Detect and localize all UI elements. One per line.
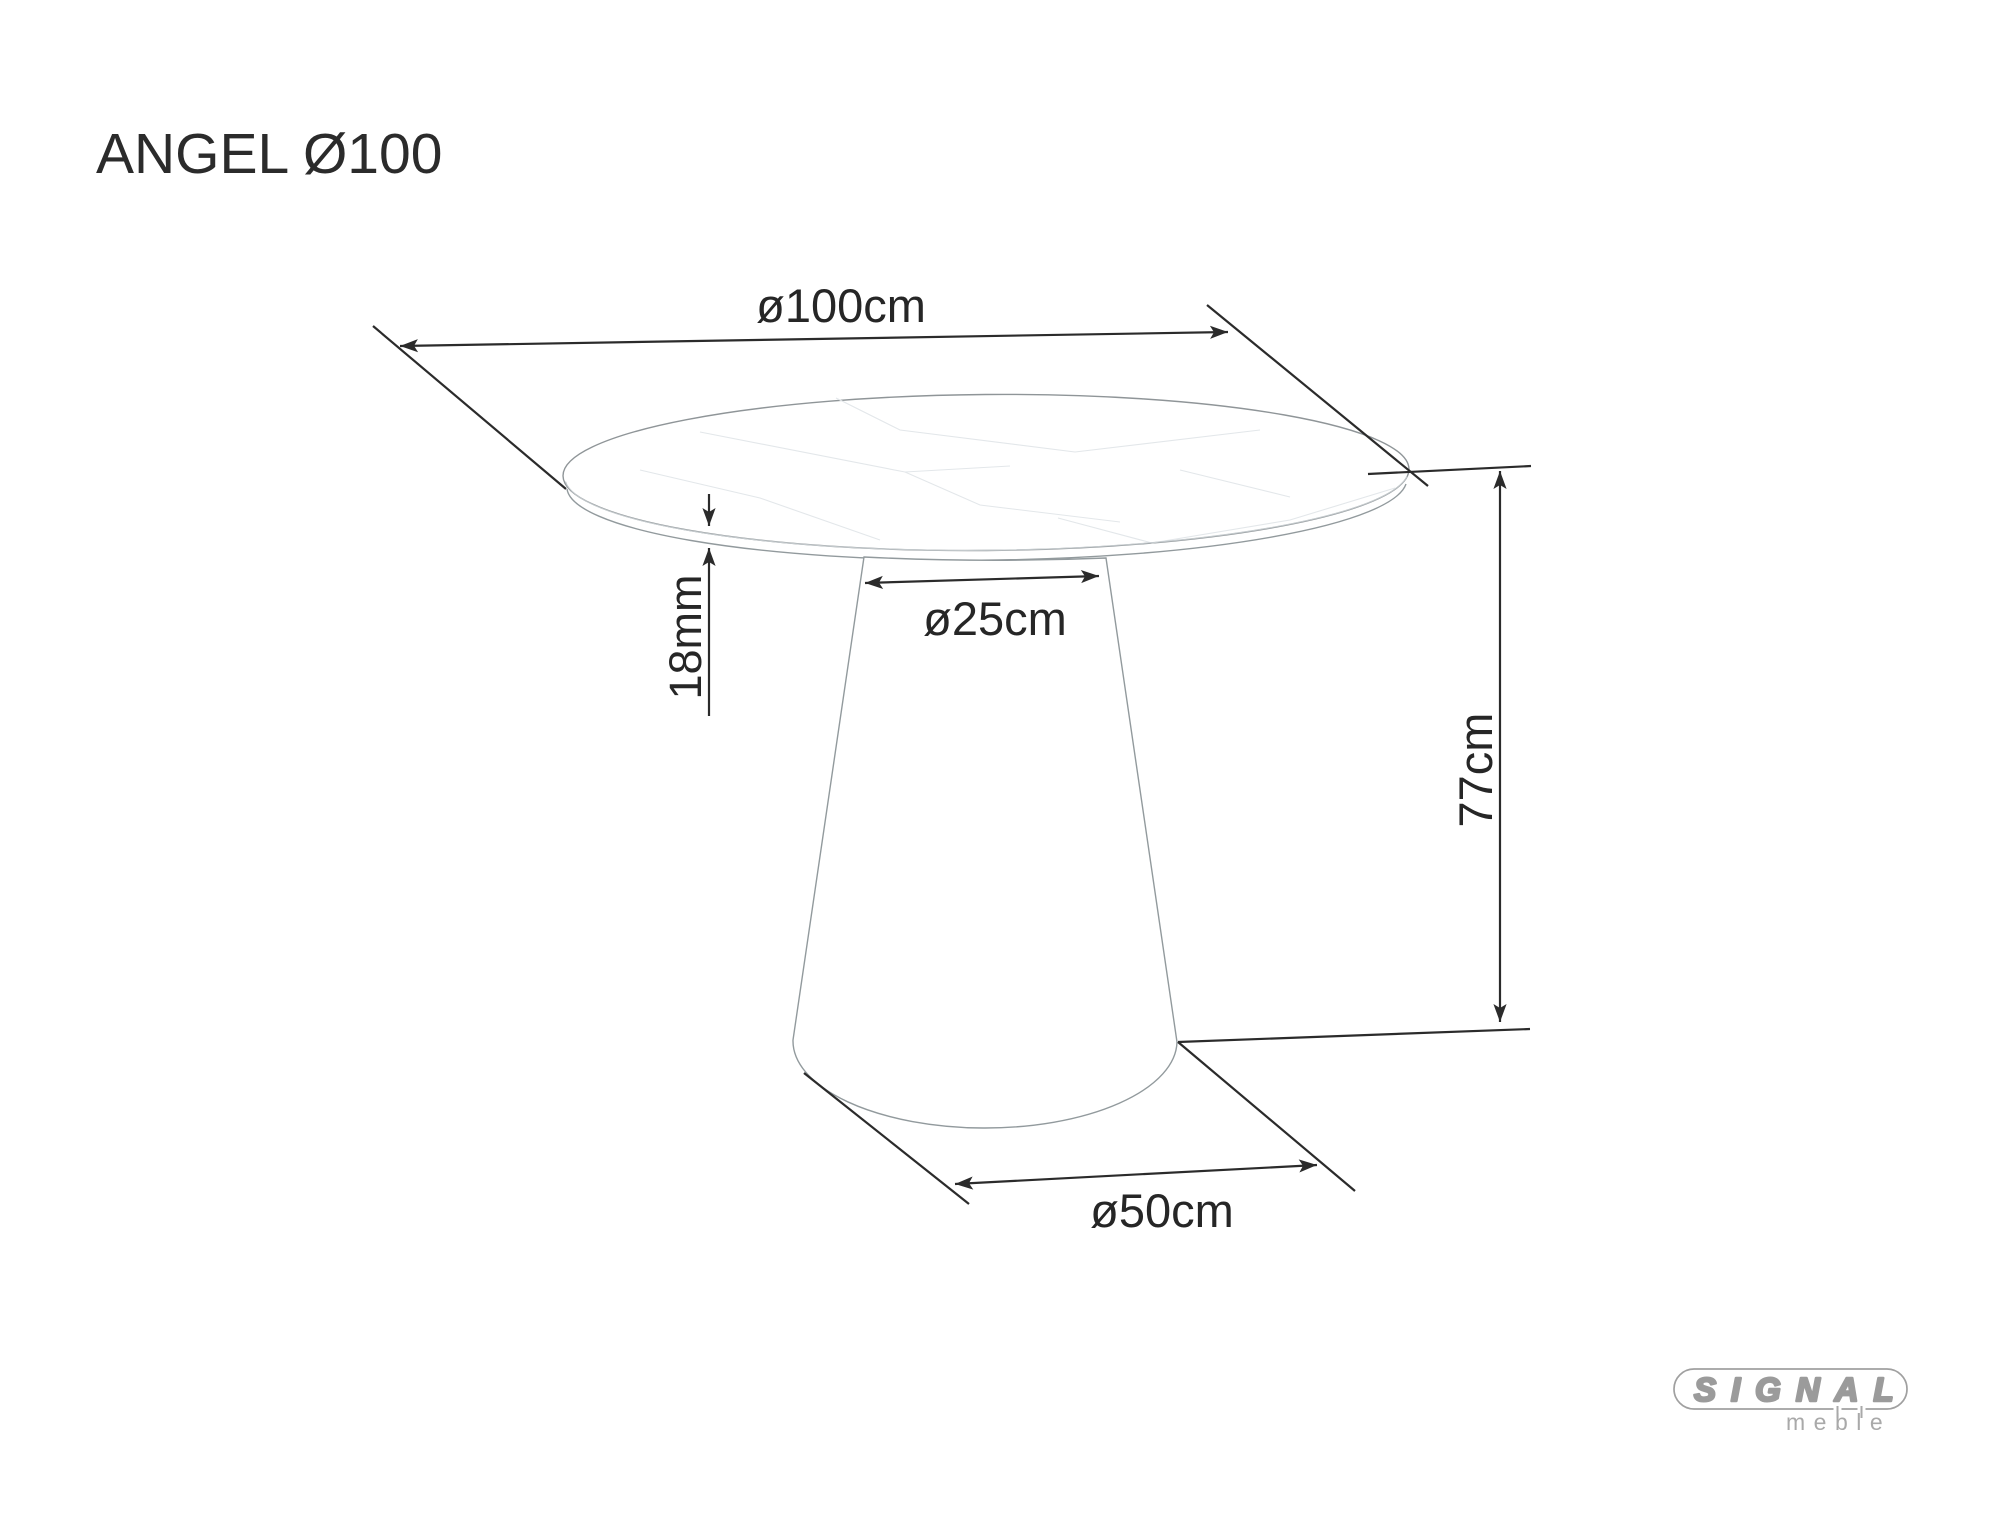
- svg-text:ø100cm: ø100cm: [756, 279, 926, 332]
- svg-text:ø50cm: ø50cm: [1090, 1184, 1234, 1237]
- svg-text:77cm: 77cm: [1449, 713, 1502, 828]
- svg-text:meble: meble: [1786, 1409, 1891, 1435]
- svg-text:ø25cm: ø25cm: [923, 592, 1067, 645]
- svg-text:ANGEL Ø100: ANGEL Ø100: [96, 122, 442, 186]
- svg-text:18mm: 18mm: [660, 574, 711, 699]
- svg-text:SIGNAL: SIGNAL: [1694, 1371, 1909, 1408]
